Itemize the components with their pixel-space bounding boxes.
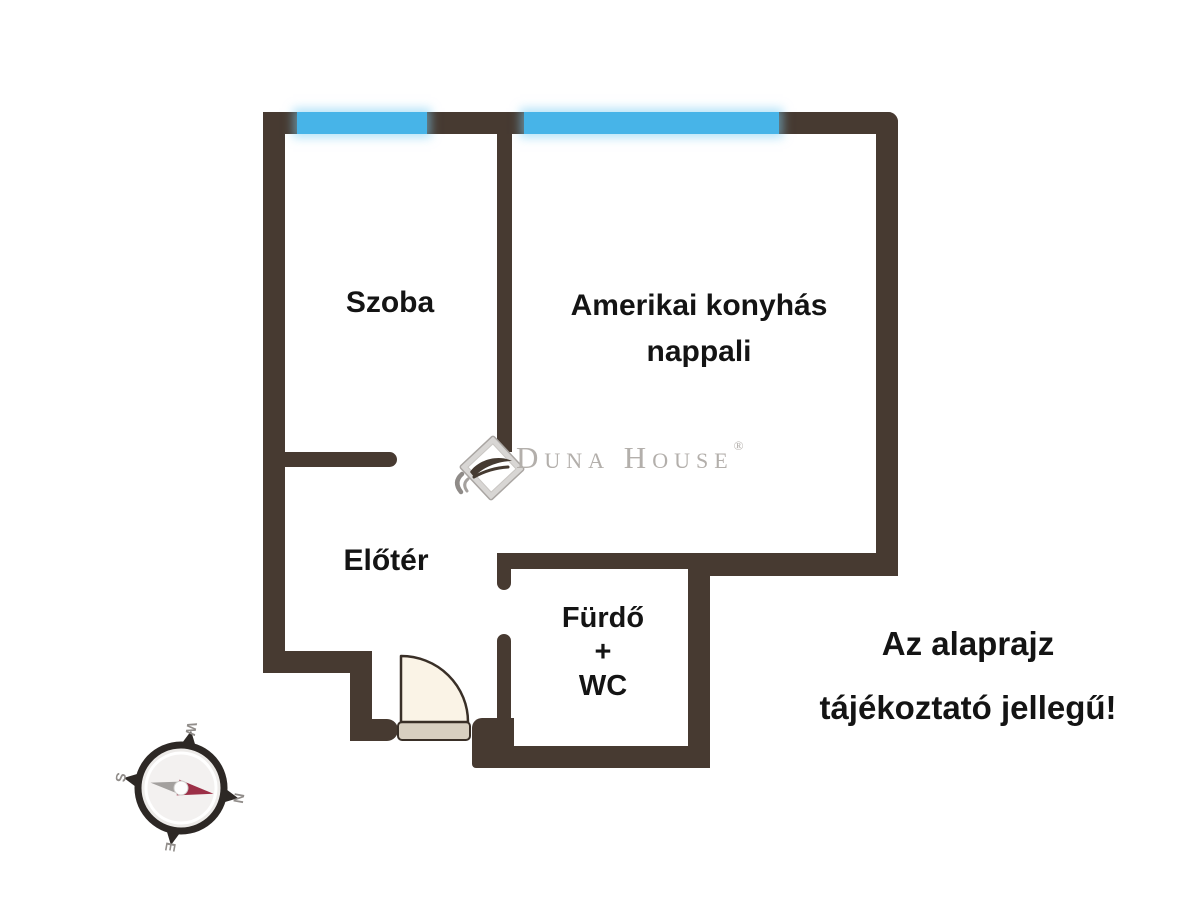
door-swing-arc: [401, 656, 468, 722]
room-label-szoba: Szoba: [346, 280, 434, 326]
compass-label-n: N: [230, 792, 248, 805]
disclaimer-text: Az alaprajz tájékoztató jellegű!: [819, 612, 1116, 740]
window-szoba: [297, 112, 427, 134]
compass-rose: N E S W: [106, 713, 256, 863]
compass-label-s: S: [112, 771, 129, 783]
wall-right: [876, 112, 898, 576]
wall-bath-right: [688, 553, 710, 768]
floorplan-canvas: Duna House® Szoba Amerikai konyhás nappa…: [0, 0, 1200, 921]
door-threshold: [398, 722, 470, 740]
compass-label-w: W: [182, 721, 200, 738]
registered-trademark-icon: ®: [734, 438, 744, 453]
wall-stub-szoba-eloter: [285, 452, 397, 467]
wall-bath-left-stub: [497, 553, 511, 590]
wall-bath-bottom: [472, 746, 710, 768]
wall-entry-jamb: [350, 719, 398, 741]
room-label-furdo-wc: Fürdő + WC: [562, 601, 644, 703]
entry-door: [394, 646, 478, 744]
wall-bath-top: [497, 553, 710, 569]
wall-nappali-bottom: [688, 553, 898, 576]
window-nappali: [524, 112, 779, 134]
wall-left: [263, 112, 285, 673]
compass-label-e: E: [162, 841, 179, 853]
brand-wordmark: Duna House®: [516, 438, 744, 476]
room-label-nappali: Amerikai konyhás nappali: [571, 283, 828, 375]
wall-divider-szoba-nappali: [497, 134, 512, 452]
room-label-eloter: Előtér: [343, 538, 428, 584]
